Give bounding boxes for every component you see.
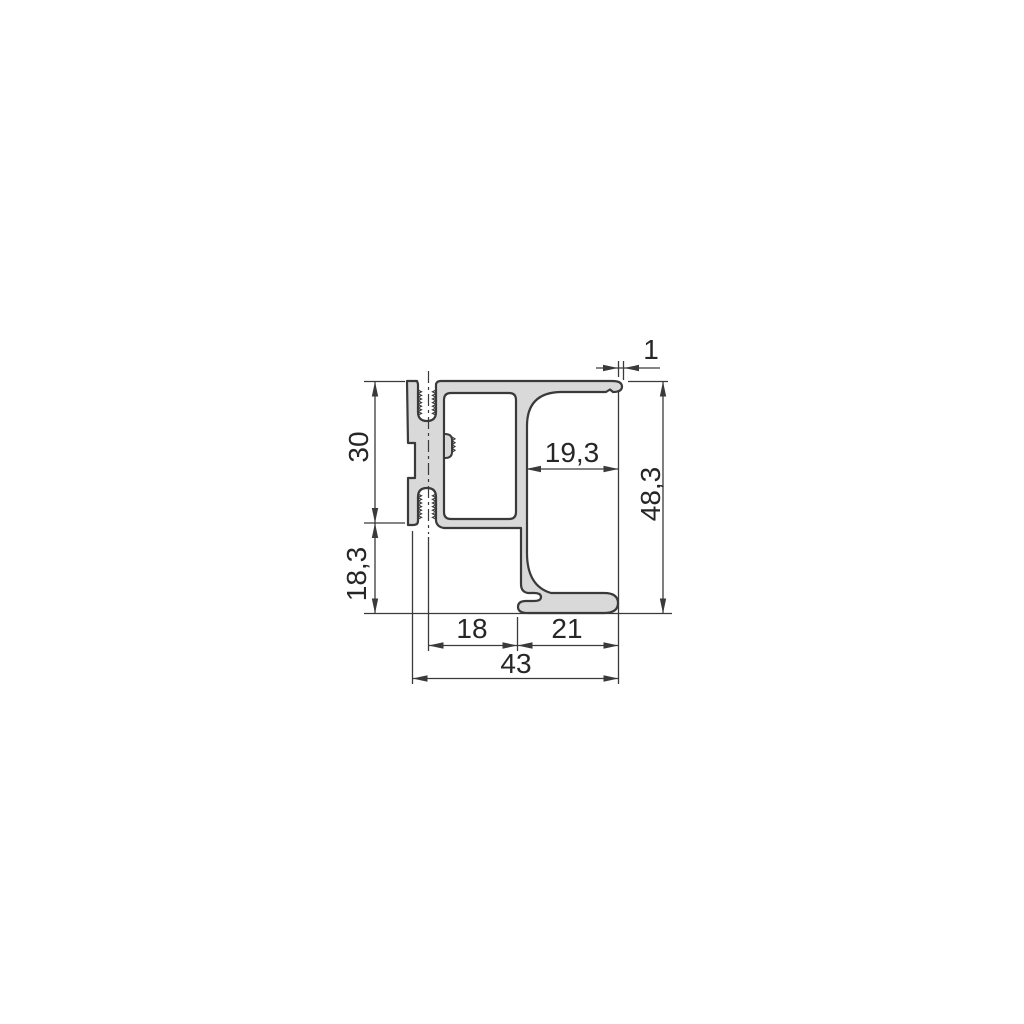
arrow-43-left <box>413 675 428 681</box>
drawing-canvas: 30 18,3 48,3 19,3 1 18 21 43 <box>0 0 1024 1024</box>
arrow-193-left <box>526 466 541 472</box>
arrow-21-right <box>604 642 619 648</box>
arrow-18-left <box>429 642 444 648</box>
arrow-30-up <box>372 382 378 397</box>
arrow-483-up <box>660 382 666 397</box>
arrow-30-down <box>372 508 378 523</box>
profile-inner-nub <box>444 434 452 458</box>
arrow-43-right <box>604 675 619 681</box>
dim-label-channel-inner-width: 19,3 <box>545 439 600 467</box>
arrow-193-right <box>604 466 619 472</box>
dim-label-lip-thickness: 1 <box>643 336 659 364</box>
arrow-1-left <box>603 365 618 371</box>
arrow-483-down <box>660 599 666 614</box>
dim-label-right-section-width: 21 <box>551 615 582 643</box>
arrow-183-up <box>372 523 378 538</box>
profile-outline <box>407 381 622 613</box>
dim-label-left-section-width: 18 <box>456 615 487 643</box>
arrow-1-right <box>624 365 639 371</box>
dim-label-lower-section-height: 18,3 <box>343 547 371 602</box>
dim-label-overall-height: 48,3 <box>637 467 665 522</box>
profile-technical-drawing <box>0 0 1024 1024</box>
dim-label-overall-width: 43 <box>500 650 531 678</box>
profile-cross-section <box>407 371 622 613</box>
arrow-183-down <box>372 599 378 614</box>
dim-label-upper-section-height: 30 <box>345 431 373 462</box>
